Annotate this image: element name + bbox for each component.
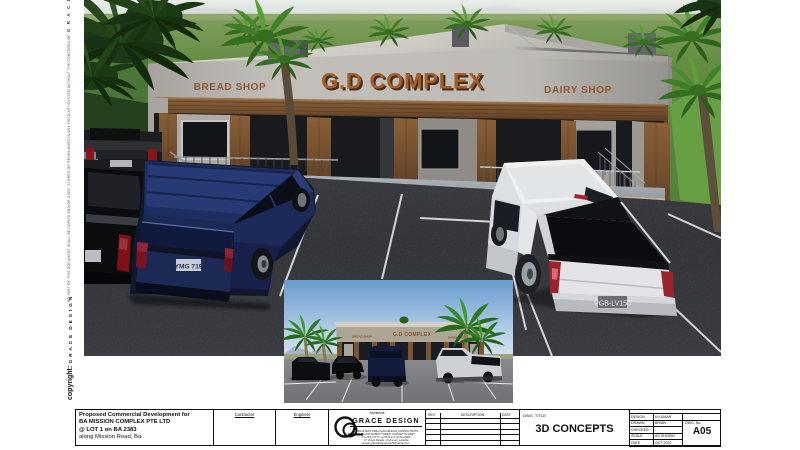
svg-text:BREAD SHOP: BREAD SHOP	[352, 335, 372, 339]
svg-text:YMG 719: YMG 719	[175, 264, 203, 271]
svg-text:PGB-LV150: PGB-LV150	[594, 301, 631, 308]
svg-text:G.D COMPLEX: G.D COMPLEX	[393, 332, 432, 338]
